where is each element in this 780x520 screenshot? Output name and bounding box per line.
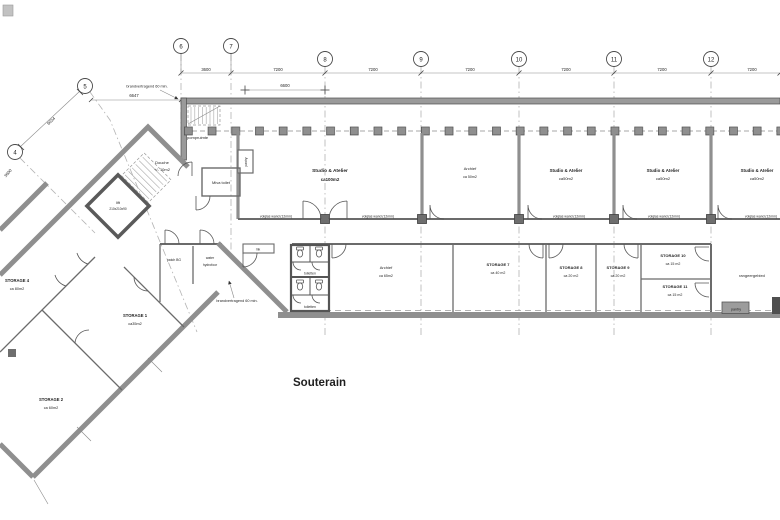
dim-3600-left: 3600 [3, 167, 13, 178]
floorplan-page: 4 5 6 7 8 9 10 11 12 3600 7200 7200 7200… [0, 0, 780, 520]
label-douche: Douche [155, 160, 170, 165]
fire-label-top: brandvertragend 60 min. [126, 85, 167, 89]
main-walls [181, 98, 780, 224]
label-mk: mk [256, 248, 261, 252]
label-miva-toilet: Miva toilet [212, 180, 231, 185]
label-glass-4: volglas wand (12mm) [648, 215, 680, 219]
label-storage2-area: ca 60m2 [44, 406, 59, 410]
label-studio100-area: ca100m2 [321, 177, 340, 182]
label-storage1-area: ca35m2 [128, 322, 142, 326]
grid-bubble-11: 11 [611, 58, 618, 64]
label-patch-bg: patch BG [167, 258, 181, 262]
label-douche-area: +/- 10m2 [154, 167, 171, 172]
label-storage8: STORAGE 8 [559, 265, 583, 270]
fire-label-mid: brandvertragend 60 min. [216, 299, 257, 303]
dim-7200-f: 7200 [747, 67, 757, 72]
grid-bubble-10: 10 [516, 58, 523, 64]
label-storage10: STORAGE 10 [660, 253, 686, 258]
label-studio50-a: Studio & Atelier [550, 168, 583, 173]
label-storage9-area: ca 20 m2 [611, 274, 626, 278]
label-pantry-niche: pantry [244, 157, 248, 166]
dim-7200-d: 7200 [561, 67, 571, 72]
label-toiletten-1: toiletten [304, 272, 316, 276]
dim-6034: 6034 [46, 115, 57, 125]
label-glass-1: volglas wand (12mm) [260, 215, 292, 219]
label-toiletten-2: toiletten [304, 305, 316, 309]
label-studio100: Studio & Atelier [312, 168, 348, 174]
label-pantry-box: pantry [731, 308, 741, 312]
lower-walls [278, 244, 780, 315]
dim-7200-b: 7200 [368, 67, 378, 72]
label-studio50-b: Studio & Atelier [647, 168, 680, 173]
label-storage4: STORAGE 4 [5, 278, 30, 283]
label-storage4-area: ca 80m2 [10, 287, 25, 291]
label-storage7: STORAGE 7 [486, 262, 510, 267]
floorplan-svg: 4 5 6 7 8 9 10 11 12 3600 7200 7200 7200… [0, 0, 780, 520]
dim-7200-e: 7200 [657, 67, 667, 72]
corner-fragment [3, 5, 13, 16]
label-studio50-c: Studio & Atelier [741, 168, 774, 173]
label-storage8-area: ca 20 m2 [564, 274, 579, 278]
label-studio50-a-area: ca50m2 [559, 176, 574, 181]
label-storage11: STORAGE 11 [662, 284, 688, 289]
label-storage2: STORAGE 2 [39, 397, 64, 402]
dim-7200-a: 7200 [273, 67, 283, 72]
label-archief50-area: ca 50m2 [463, 175, 477, 179]
label-storage10-area: ca 15 m2 [666, 262, 681, 266]
grid-bubble-12: 12 [708, 58, 715, 64]
label-storage11-area: ca 15 m2 [668, 293, 683, 297]
label-studio50-b-area: ca50m2 [656, 176, 671, 181]
label-water: water [206, 256, 215, 260]
label-rangeergebied: rangeergebied [739, 273, 765, 278]
label-archief65-area: ca 65m2 [379, 274, 393, 278]
label-glass-5: volglas wand (12mm) [745, 215, 777, 219]
label-glass-2: volglas wand (12mm) [362, 215, 394, 219]
label-glass-3: volglas wand (12mm) [553, 215, 585, 219]
label-hydrofoor: hydrofoor [203, 263, 218, 267]
toilet-blocks [291, 245, 329, 311]
label-pompruimte: pompruimte [187, 135, 209, 140]
stair-upper [188, 106, 220, 125]
label-lift-size: 210x210x90 [109, 207, 127, 211]
label-storage9: STORAGE 9 [606, 265, 630, 270]
label-studio50-c-area: ca50m2 [750, 176, 765, 181]
label-archief65: Archief [380, 265, 393, 270]
label-archief50: Archief [464, 166, 477, 171]
dim-3600: 3600 [201, 67, 211, 72]
label-storage7-area: ca 40 m2 [491, 271, 506, 275]
label-storage1: STORAGE 1 [123, 313, 148, 318]
dim-7200-c: 7200 [465, 67, 475, 72]
dim-6600: 6600 [280, 83, 290, 88]
dim-6647: 6647 [129, 93, 139, 98]
page-title: Souterain [293, 377, 346, 389]
